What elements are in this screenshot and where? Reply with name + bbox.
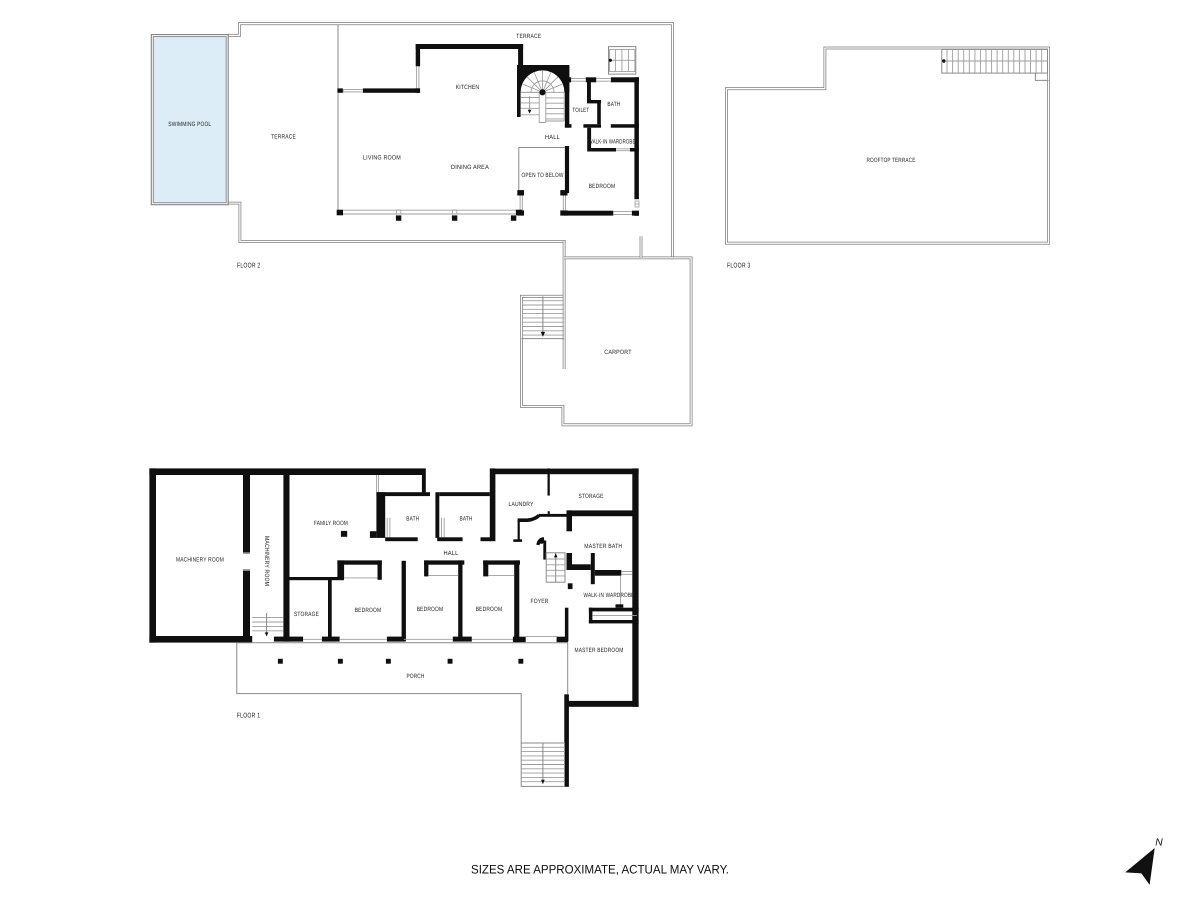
- svg-text:HALL: HALL: [545, 134, 560, 141]
- svg-text:SWIMMING POOL: SWIMMING POOL: [168, 121, 211, 128]
- svg-text:STORAGE: STORAGE: [579, 493, 604, 500]
- svg-text:TOILET: TOILET: [572, 107, 589, 114]
- svg-text:LIVING ROOM: LIVING ROOM: [363, 154, 401, 161]
- svg-text:DINING AREA: DINING AREA: [451, 164, 490, 171]
- svg-text:N: N: [1155, 837, 1163, 848]
- svg-text:MACHINERY ROOM: MACHINERY ROOM: [176, 556, 224, 563]
- svg-text:FAMILY ROOM: FAMILY ROOM: [314, 520, 348, 527]
- svg-text:LAUNDRY: LAUNDRY: [509, 501, 534, 508]
- svg-text:BEDROOM: BEDROOM: [589, 183, 616, 190]
- svg-text:BEDROOM: BEDROOM: [476, 606, 503, 613]
- svg-text:BEDROOM: BEDROOM: [417, 606, 444, 613]
- svg-text:HALL: HALL: [444, 550, 459, 557]
- svg-text:WALK-IN WARDROBE: WALK-IN WARDROBE: [584, 592, 635, 599]
- svg-text:KITCHEN: KITCHEN: [456, 84, 480, 91]
- svg-text:TERRACE: TERRACE: [516, 33, 541, 40]
- svg-text:SIZES ARE APPROXIMATE, ACTUAL: SIZES ARE APPROXIMATE, ACTUAL MAY VARY.: [471, 863, 729, 877]
- svg-text:FOYER: FOYER: [531, 598, 549, 605]
- svg-text:BATH: BATH: [460, 515, 473, 522]
- svg-text:WALK-IN WARDROBE: WALK-IN WARDROBE: [589, 139, 636, 146]
- svg-text:PORCH: PORCH: [407, 673, 425, 680]
- svg-text:CARPORT: CARPORT: [604, 349, 632, 356]
- svg-text:FLOOR 2: FLOOR 2: [237, 263, 261, 270]
- svg-text:TERRACE: TERRACE: [271, 134, 296, 141]
- svg-text:FLOOR 3: FLOOR 3: [727, 263, 751, 270]
- svg-text:BEDROOM: BEDROOM: [355, 607, 382, 614]
- svg-text:ROOFTOP TERRACE: ROOFTOP TERRACE: [867, 157, 916, 164]
- svg-text:STORAGE: STORAGE: [294, 611, 319, 618]
- svg-text:BATH: BATH: [607, 101, 620, 108]
- svg-text:BATH: BATH: [406, 515, 419, 522]
- svg-text:MASTER BEDROOM: MASTER BEDROOM: [575, 647, 624, 654]
- svg-text:MACHINERY ROOM: MACHINERY ROOM: [263, 536, 270, 586]
- svg-text:OPEN TO BELOW: OPEN TO BELOW: [522, 172, 564, 179]
- svg-text:FLOOR 1: FLOOR 1: [237, 713, 260, 720]
- svg-text:MASTER BATH: MASTER BATH: [584, 543, 622, 550]
